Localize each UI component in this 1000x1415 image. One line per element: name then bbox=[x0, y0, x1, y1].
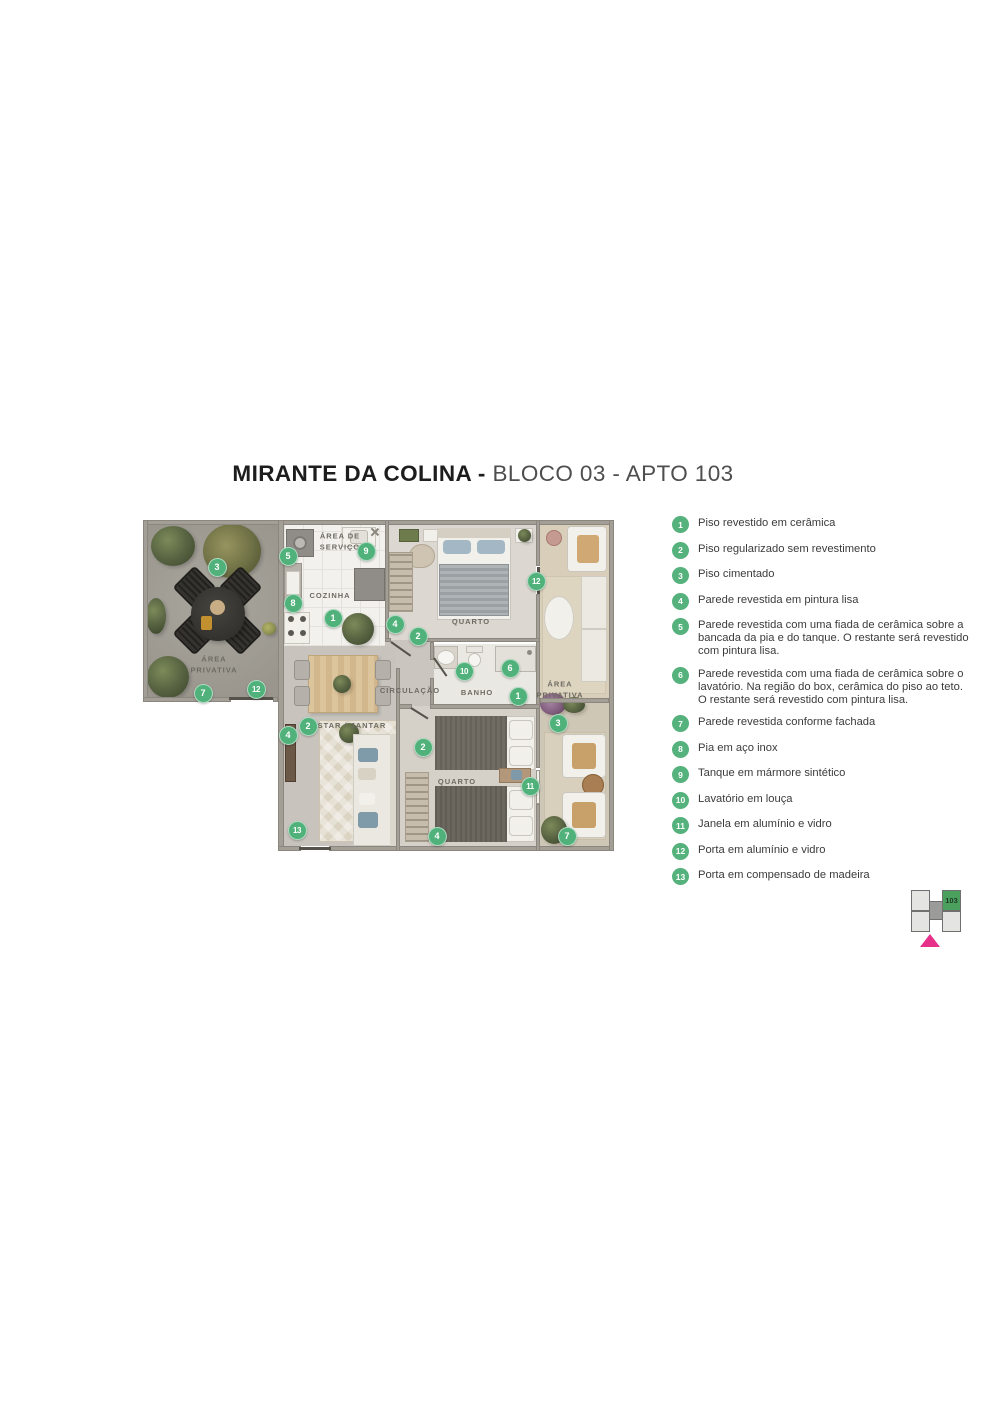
bed-blanket bbox=[435, 716, 507, 770]
room-label: QUARTO bbox=[438, 777, 476, 788]
washing-machine-door bbox=[293, 536, 307, 550]
page: { "title": { "project": "MIRANTE DA COLI… bbox=[0, 0, 1000, 1415]
room-label: ÁREA DE SERVIÇO bbox=[320, 532, 360, 553]
room-label: CIRCULAÇÃO bbox=[380, 686, 440, 697]
keyplan-highlighted-unit: 103 bbox=[942, 890, 961, 911]
plan-marker: 8 bbox=[284, 594, 303, 613]
wall bbox=[430, 704, 540, 709]
keyplan: 103 bbox=[903, 888, 967, 950]
plan-marker: 2 bbox=[414, 738, 433, 757]
keyplan-unit bbox=[942, 911, 961, 932]
wall bbox=[609, 520, 614, 851]
shower-head bbox=[527, 650, 532, 655]
legend-item-number: 3 bbox=[672, 567, 689, 584]
legend-item-text: Porta em alumínio e vidro bbox=[698, 844, 972, 857]
wall bbox=[143, 520, 148, 702]
legend-item-number: 9 bbox=[672, 766, 689, 783]
bed-pillow bbox=[509, 746, 533, 766]
plan-marker: 10 bbox=[455, 662, 474, 681]
wall bbox=[536, 520, 540, 566]
legend-item: 5Parede revestida com uma fiada de cerâm… bbox=[672, 619, 972, 658]
keyplan-core bbox=[929, 901, 943, 920]
legend-item-text: Parede revestida conforme fachada bbox=[698, 716, 972, 729]
palm-icon bbox=[147, 656, 189, 698]
table-plant-icon bbox=[333, 675, 351, 693]
legend-item-number: 4 bbox=[672, 593, 689, 610]
outdoor-sofa-split bbox=[581, 628, 607, 630]
bed-blanket bbox=[439, 564, 509, 616]
plan-marker: 2 bbox=[299, 717, 318, 736]
keyplan-unit bbox=[911, 890, 930, 911]
bed-pillow bbox=[477, 540, 505, 554]
wall bbox=[536, 804, 540, 851]
bed-pillow bbox=[443, 540, 471, 554]
plan-marker: 1 bbox=[324, 609, 343, 628]
room-label: COZINHA bbox=[310, 591, 351, 602]
legend-item-number: 12 bbox=[672, 843, 689, 860]
room-label: ESTAR / JANTAR bbox=[312, 721, 387, 732]
legend-item-number: 8 bbox=[672, 741, 689, 758]
plan-marker: 4 bbox=[428, 827, 447, 846]
room-label: QUARTO bbox=[452, 617, 490, 628]
plan-marker: 3 bbox=[208, 558, 227, 577]
plan-marker: 9 bbox=[357, 542, 376, 561]
plant-icon bbox=[342, 613, 374, 645]
wardrobe bbox=[389, 552, 413, 612]
legend-item-text: Piso regularizado sem revestimento bbox=[698, 543, 972, 556]
lounge-cushion bbox=[577, 535, 599, 563]
table-tray bbox=[201, 616, 212, 630]
plan-marker: 7 bbox=[194, 684, 213, 703]
plan-marker: 11 bbox=[521, 777, 540, 796]
wall bbox=[329, 846, 614, 851]
plan-marker: 5 bbox=[279, 547, 298, 566]
legend-item-number: 1 bbox=[672, 516, 689, 533]
legend-item-number: 5 bbox=[672, 618, 689, 635]
wall bbox=[278, 520, 284, 851]
floor-plan: ÁREA PRIVATIVAÁREA DE SERVIÇOCOZINHAQUAR… bbox=[143, 520, 614, 852]
legend-item: 12Porta em alumínio e vidro bbox=[672, 844, 972, 860]
sofa-cushion bbox=[358, 768, 376, 780]
lounge-cushion bbox=[572, 802, 596, 828]
legend-item-text: Parede revestida em pintura lisa bbox=[698, 594, 972, 607]
legend-item-number: 10 bbox=[672, 792, 689, 809]
dining-chair bbox=[294, 660, 310, 680]
plan-marker: 12 bbox=[527, 572, 546, 591]
stove-burner bbox=[288, 630, 294, 636]
legend-item: 9Tanque em mármore sintético bbox=[672, 767, 972, 783]
legend-item: 13Porta em compensado de madeira bbox=[672, 869, 972, 885]
legend-item-text: Piso revestido em cerâmica bbox=[698, 517, 972, 530]
legend-item-text: Porta em compensado de madeira bbox=[698, 869, 972, 882]
legend-item-text: Parede revestida com uma fiada de cerâmi… bbox=[698, 619, 972, 658]
vent-x-icon bbox=[370, 527, 380, 537]
legend-item: 3Piso cimentado bbox=[672, 568, 972, 584]
bathroom-sink bbox=[437, 650, 455, 665]
plan-marker: 3 bbox=[549, 714, 568, 733]
refrigerator bbox=[354, 568, 385, 601]
plan-marker: 7 bbox=[558, 827, 577, 846]
plan-marker: 4 bbox=[279, 726, 298, 745]
bed-pillow bbox=[509, 816, 533, 836]
plan-marker: 4 bbox=[386, 615, 405, 634]
planter-box bbox=[399, 529, 419, 542]
sofa-cushion bbox=[358, 812, 378, 828]
legend-item: 8Pia em aço inox bbox=[672, 742, 972, 758]
kitchen-sink bbox=[286, 571, 300, 595]
legend-item: 11Janela em alumínio e vidro bbox=[672, 818, 972, 834]
stove-burner bbox=[300, 616, 306, 622]
legend-item-number: 6 bbox=[672, 667, 689, 684]
sofa-cushion bbox=[358, 748, 378, 762]
shrub-icon bbox=[262, 622, 276, 635]
keyplan-unit bbox=[911, 911, 930, 932]
plan-marker: 12 bbox=[247, 680, 266, 699]
room-label: ÁREA PRIVATIVA bbox=[190, 655, 237, 676]
page-title: MIRANTE DA COLINA - BLOCO 03 - APTO 103 bbox=[0, 461, 966, 487]
toilet bbox=[466, 646, 483, 653]
legend-item-text: Janela em alumínio e vidro bbox=[698, 818, 972, 831]
dining-chair bbox=[294, 686, 310, 706]
legend-item-text: Piso cimentado bbox=[698, 568, 972, 581]
side-table bbox=[546, 530, 562, 546]
legend-item-text: Tanque em mármore sintético bbox=[698, 767, 972, 780]
unit-name: BLOCO 03 - APTO 103 bbox=[493, 461, 734, 486]
entry-door bbox=[299, 847, 331, 850]
plant-icon bbox=[518, 529, 531, 542]
lounge-cushion bbox=[572, 743, 596, 769]
legend-item-number: 2 bbox=[672, 542, 689, 559]
legend-item-number: 13 bbox=[672, 868, 689, 885]
legend-item: 7Parede revestida conforme fachada bbox=[672, 716, 972, 732]
plan-marker: 1 bbox=[509, 687, 528, 706]
dining-chair bbox=[375, 660, 391, 680]
nightstand-deco bbox=[511, 770, 522, 780]
legend-item: 6Parede revestida com uma fiada de cerâm… bbox=[672, 668, 972, 707]
plan-marker: 6 bbox=[501, 659, 520, 678]
project-name: MIRANTE DA COLINA - bbox=[232, 461, 485, 486]
stove-burner bbox=[300, 630, 306, 636]
legend-item: 4Parede revestida em pintura lisa bbox=[672, 594, 972, 610]
bush-icon bbox=[151, 526, 195, 566]
bed-pillow bbox=[509, 720, 533, 740]
bush-icon bbox=[146, 598, 166, 634]
stove-burner bbox=[288, 616, 294, 622]
wall bbox=[143, 697, 231, 702]
legend-item-text: Pia em aço inox bbox=[698, 742, 972, 755]
legend-item: 2Piso regularizado sem revestimento bbox=[672, 543, 972, 559]
room-label: ÁREA PRIVATIVA bbox=[536, 680, 583, 701]
plan-marker: 2 bbox=[409, 627, 428, 646]
wardrobe bbox=[405, 772, 429, 842]
table-plate bbox=[210, 600, 225, 615]
legend-item-number: 11 bbox=[672, 817, 689, 834]
legend-item: 10Lavatório em louça bbox=[672, 793, 972, 809]
room-label: BANHO bbox=[461, 688, 493, 699]
wall bbox=[278, 846, 301, 851]
bed-headboard bbox=[437, 528, 511, 538]
legend-list: 1Piso revestido em cerâmica2Piso regular… bbox=[672, 517, 972, 895]
legend-item-text: Parede revestida com uma fiada de cerâmi… bbox=[698, 668, 972, 707]
oval-coffee-table bbox=[544, 596, 574, 640]
legend-item: 1Piso revestido em cerâmica bbox=[672, 517, 972, 533]
wall bbox=[143, 520, 614, 525]
legend-item-number: 7 bbox=[672, 715, 689, 732]
sofa-cushion bbox=[359, 793, 375, 805]
legend-item-text: Lavatório em louça bbox=[698, 793, 972, 806]
plan-marker: 13 bbox=[288, 821, 307, 840]
north-triangle-icon bbox=[920, 934, 940, 947]
